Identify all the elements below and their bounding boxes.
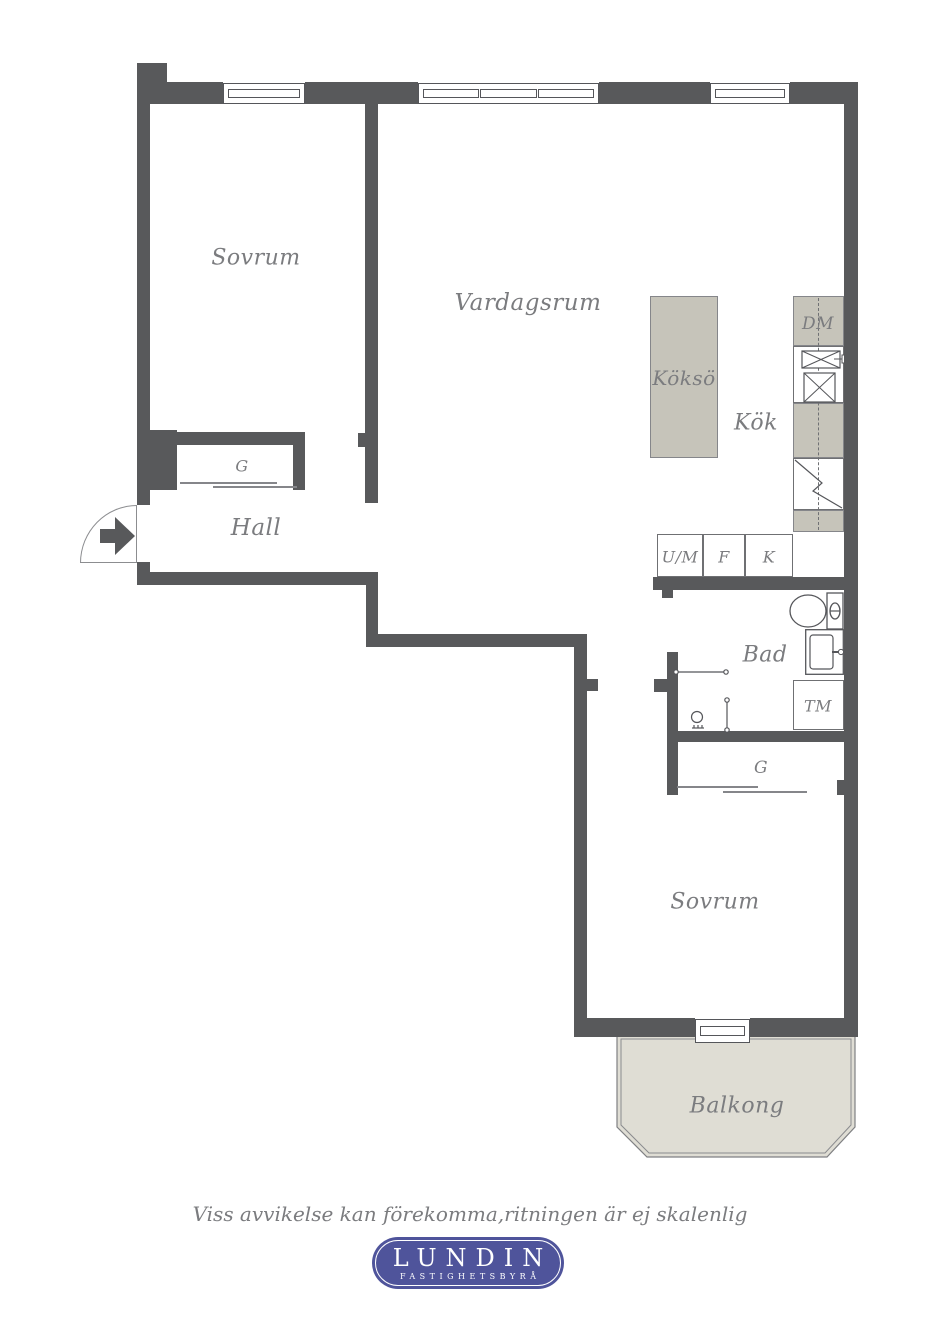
disclaimer-text: Viss avvikelse kan förekomma,ritningen ä…	[0, 1202, 940, 1226]
wall-hall-step	[366, 585, 378, 647]
kitchen-sink-icon	[798, 349, 848, 403]
lundin-logo-subtitle: FASTIGHETSBYRÅ	[396, 1273, 541, 1281]
wall-top-b	[305, 82, 418, 104]
wall-closet1-right	[293, 445, 305, 490]
lundin-logo: LUNDIN FASTIGHETSBYRÅ	[372, 1237, 564, 1289]
label-wardrobe-bedroom: G	[754, 758, 768, 778]
window-livingroom	[418, 83, 599, 104]
room-label-hall: Hall	[231, 515, 281, 541]
label-fridge: K	[763, 548, 775, 567]
toilet-icon	[789, 592, 844, 630]
label-washing-machine: TM	[804, 697, 832, 716]
wall-top-a	[137, 82, 223, 104]
room-label-kitchen-island: Köksö	[652, 366, 715, 390]
window-bedroom1	[223, 83, 305, 104]
wall-bedroom1-divider-nub	[358, 433, 365, 447]
label-oven-microwave: U/M	[662, 548, 699, 567]
lundin-logo-ring: LUNDIN FASTIGHETSBYRÅ	[375, 1240, 561, 1286]
room-label-balcony: Balkong	[690, 1094, 785, 1119]
shower-rails-icon	[668, 660, 734, 736]
wall-right	[844, 104, 858, 1037]
closet2-sliding-door	[677, 786, 758, 788]
wall-bedroom2-bottom-left	[574, 1018, 695, 1037]
bathroom-sink-icon	[805, 629, 844, 675]
wall-corridor-top	[378, 634, 587, 647]
entrance-arrow-icon	[96, 514, 138, 558]
label-freezer: F	[718, 548, 730, 567]
wall-top-c	[599, 82, 710, 104]
wall-bedroom1-bottom	[177, 432, 305, 445]
lundin-logo-name: LUNDIN	[384, 1246, 553, 1270]
wall-corridor-nub	[587, 679, 598, 691]
room-label-bath: Bad	[743, 643, 788, 668]
wall-bedroom2-left	[574, 634, 587, 1037]
wall-closet2-stub	[837, 780, 848, 795]
wall-kitchen-bottom-nub	[662, 590, 673, 598]
wall-bedroom1-bottom-corner	[137, 430, 177, 490]
closet1-sliding-door	[180, 482, 277, 484]
corner-cabinet-icon	[793, 458, 844, 510]
room-label-livingroom: Vardagsrum	[455, 290, 602, 316]
wall-bath-left-nub	[654, 679, 667, 692]
room-label-bedroom2: Sovrum	[670, 890, 759, 915]
window-kitchen	[710, 83, 790, 104]
label-dishwasher: DM	[802, 314, 834, 334]
label-wardrobe-hall: G	[235, 457, 248, 476]
wall-bedroom2-bottom-right	[750, 1018, 858, 1037]
wall-kitchen-bottom	[653, 577, 844, 590]
floorplan-page: Sovrum Vardagsrum Köksö Kök Hall Bad Sov…	[0, 0, 940, 1330]
closet2-sliding-door	[723, 791, 807, 793]
room-label-kitchen: Kök	[734, 411, 778, 436]
closet1-sliding-door	[213, 486, 297, 488]
room-label-bedroom1: Sovrum	[211, 246, 300, 271]
wall-bedroom1-divider	[365, 104, 378, 503]
wall-top-d	[790, 82, 858, 104]
window-balcony-door	[695, 1019, 750, 1043]
wall-hall-bottom	[137, 572, 378, 585]
